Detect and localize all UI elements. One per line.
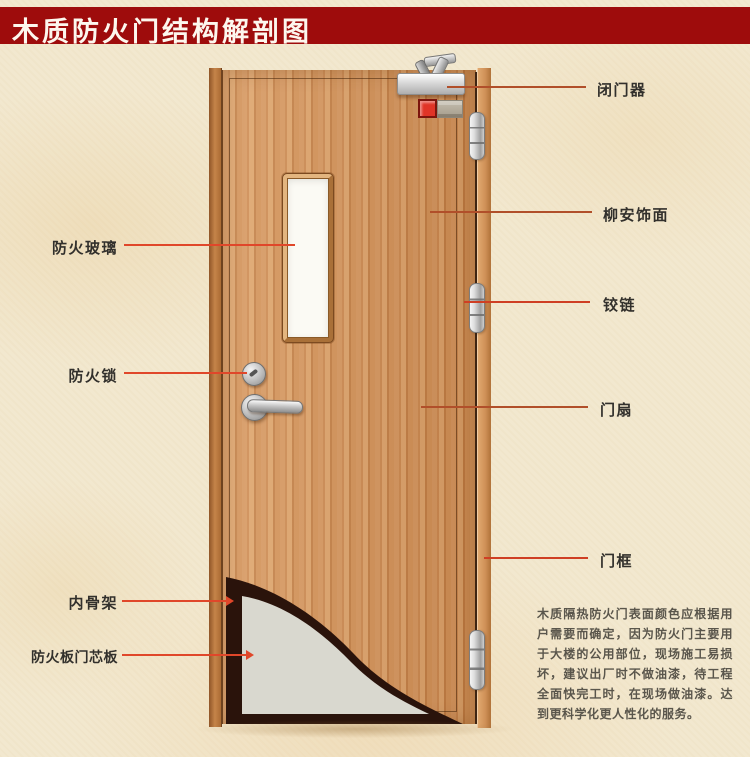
label-door-frame: 门框: [600, 550, 633, 571]
label-door-closer: 闭门器: [597, 79, 647, 100]
leader-fire-glass: [124, 244, 295, 246]
arrow-core-board-icon: [246, 650, 254, 660]
cutaway-section: [222, 570, 475, 724]
fire-glass-window: [283, 174, 333, 342]
door-closer-body: [397, 73, 465, 95]
closer-red-indicator: [418, 99, 437, 118]
page-title: 木质防火门结构解剖图: [12, 10, 312, 49]
leader-veneer: [430, 211, 592, 213]
page-background: 木质防火门结构解剖图: [0, 0, 750, 757]
door-shadow: [198, 720, 512, 738]
label-fire-glass: 防火玻璃: [28, 237, 118, 258]
door-handle-lever: [247, 399, 303, 414]
label-door-leaf: 门扇: [600, 399, 633, 420]
lock-thumbturn: [249, 369, 259, 378]
label-hinge: 铰链: [603, 294, 636, 315]
label-core-board: 防火板门芯板: [14, 647, 118, 667]
hinge-bottom: [469, 630, 485, 690]
door-edge-left: [209, 68, 222, 727]
closer-mount-plate: [437, 100, 463, 118]
description-paragraph: 木质隔热防火门表面颜色应根据用户需要而确定，因为防火门主要用于大楼的公用部位，现…: [537, 604, 733, 724]
leader-fire-lock: [124, 372, 247, 374]
door-frame-right: [477, 68, 491, 728]
leader-door-frame: [484, 557, 588, 559]
hinge-top: [469, 112, 485, 160]
label-veneer: 柳安饰面: [603, 204, 669, 225]
label-fire-lock: 防火锁: [28, 365, 118, 386]
leader-door-leaf: [421, 406, 588, 408]
leader-door-closer: [447, 86, 586, 88]
leader-inner-skeleton: [122, 600, 226, 602]
leader-hinge: [464, 301, 590, 303]
fire-lock: [242, 362, 266, 386]
leader-core-board: [122, 654, 246, 656]
label-inner-skeleton: 内骨架: [28, 592, 118, 613]
hinge-middle: [469, 283, 485, 333]
title-banner: 木质防火门结构解剖图: [0, 7, 750, 44]
arrow-inner-skeleton-icon: [226, 596, 234, 606]
